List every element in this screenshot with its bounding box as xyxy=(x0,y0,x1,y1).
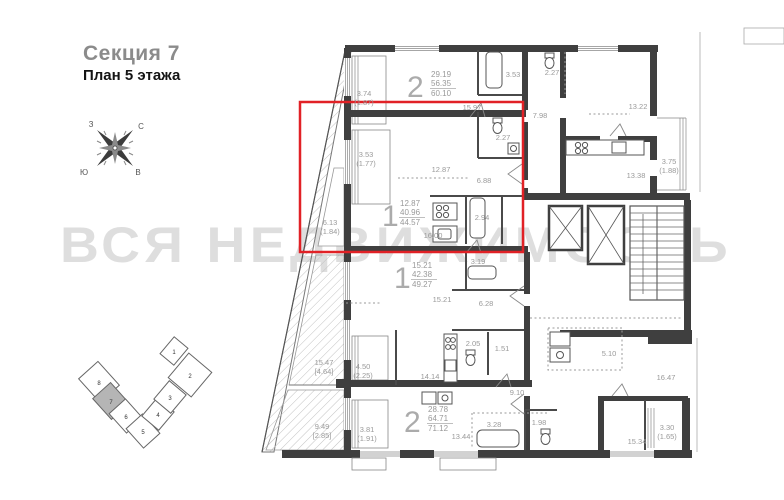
room-area-label: 2.27 xyxy=(496,133,511,142)
apartment-rooms-count: 1 xyxy=(382,200,399,233)
apartment-total-area: 44.57 xyxy=(400,218,421,227)
room-area-coef: [4.64] xyxy=(315,367,334,376)
apartment-living-area: 15.21 xyxy=(412,261,433,270)
apartment-area: 64.71 xyxy=(428,414,449,423)
staircase xyxy=(630,206,684,300)
room-area-label: 3.30 xyxy=(660,423,675,432)
room-area-coef: [2.85] xyxy=(313,431,332,440)
room-area-label: 6.28 xyxy=(479,299,494,308)
room-area-label: 15.97 xyxy=(463,103,482,112)
room-area-label: 3.81 xyxy=(360,425,375,434)
floor-title: План 5 этажа xyxy=(83,68,180,85)
compass-north-label: С xyxy=(138,122,144,131)
apartment-total-area: 71.12 xyxy=(428,424,449,433)
room-area-label: 2.05 xyxy=(466,339,481,348)
apartment-living-area: 29.19 xyxy=(431,70,452,79)
apartment-rooms-count: 2 xyxy=(404,406,421,439)
room-area-label: 2.94 xyxy=(475,213,490,222)
room-area-coef: (1.84) xyxy=(320,227,340,236)
apartment-rooms-count: 1 xyxy=(394,262,411,295)
apartment-card[interactable]: 2 29.19 56.35 60.10 xyxy=(407,70,456,104)
room-area-label: 9.49 xyxy=(315,422,330,431)
room-area-coef: (1.88) xyxy=(659,166,679,175)
room-area-coef: (1.77) xyxy=(356,159,376,168)
section-title: Секция 7 xyxy=(83,42,180,65)
room-area-label: 1.98 xyxy=(532,418,547,427)
apartment-total-area: 49.27 xyxy=(412,280,433,289)
room-area-coef: (1.91) xyxy=(357,434,377,443)
apartment-area: 56.35 xyxy=(431,79,452,88)
room-area-label: 3.75 xyxy=(662,157,677,166)
room-area-label: 7.98 xyxy=(533,111,548,120)
room-area-label: 15.47 xyxy=(315,358,334,367)
room-area-label: 16.00 xyxy=(424,231,443,240)
room-area-label: 3.28 xyxy=(487,420,502,429)
room-area-label: 13.22 xyxy=(629,102,648,111)
room-area-label: 15.34 xyxy=(628,437,647,446)
room-area-label: 16.47 xyxy=(657,373,676,382)
apartment-rooms-count: 2 xyxy=(407,71,424,104)
apartment-card[interactable]: 2 28.78 64.71 71.12 xyxy=(404,405,453,439)
room-area-coef: (1.65) xyxy=(657,432,677,441)
room-area-label: 6.88 xyxy=(477,176,492,185)
apartment-card[interactable]: 1 15.21 42.38 49.27 xyxy=(394,261,437,295)
room-area-label: 14.14 xyxy=(421,372,440,381)
room-area-label: 6.13 xyxy=(323,218,338,227)
apartment-area: 42.38 xyxy=(412,270,433,279)
room-area-label: 13.38 xyxy=(627,171,646,180)
site-plan-minimap: 1 2 3 4 5 6 7 8 xyxy=(79,337,212,448)
room-area-label: 12.87 xyxy=(432,165,451,174)
floor-plan-page: Секция 7 План 5 этажа ВСЯ НЕДВИЖИМОСТЬ xyxy=(0,0,784,500)
room-area-label: 15.21 xyxy=(433,295,452,304)
compass-rose: С В Ю З xyxy=(80,120,144,177)
room-area-label: 3.19 xyxy=(471,257,486,266)
compass-south-label: Ю xyxy=(80,168,88,177)
room-area-label: 13.44 xyxy=(452,432,471,441)
page-header: Секция 7 План 5 этажа xyxy=(83,42,180,85)
apartment-living-area: 12.87 xyxy=(400,199,421,208)
room-area-label: 3.53 xyxy=(506,70,521,79)
room-area-label: 5.10 xyxy=(602,349,617,358)
room-area-label: 3.53 xyxy=(359,150,374,159)
apartment-total-area: 60.10 xyxy=(431,89,452,98)
apartment-living-area: 28.78 xyxy=(428,405,449,414)
room-area-coef: (2.25) xyxy=(353,371,373,380)
room-area-label: 4.50 xyxy=(356,362,371,371)
compass-east-label: В xyxy=(135,168,140,177)
room-area-label: 2.27 xyxy=(545,68,560,77)
apartment-area: 40.96 xyxy=(400,208,421,217)
room-area-label: 3.74 xyxy=(357,89,372,98)
compass-west-label: З xyxy=(89,120,94,129)
room-area-label: 1.51 xyxy=(495,344,510,353)
room-area-coef: (1.87) xyxy=(354,98,374,107)
room-area-label: 9.10 xyxy=(510,388,525,397)
